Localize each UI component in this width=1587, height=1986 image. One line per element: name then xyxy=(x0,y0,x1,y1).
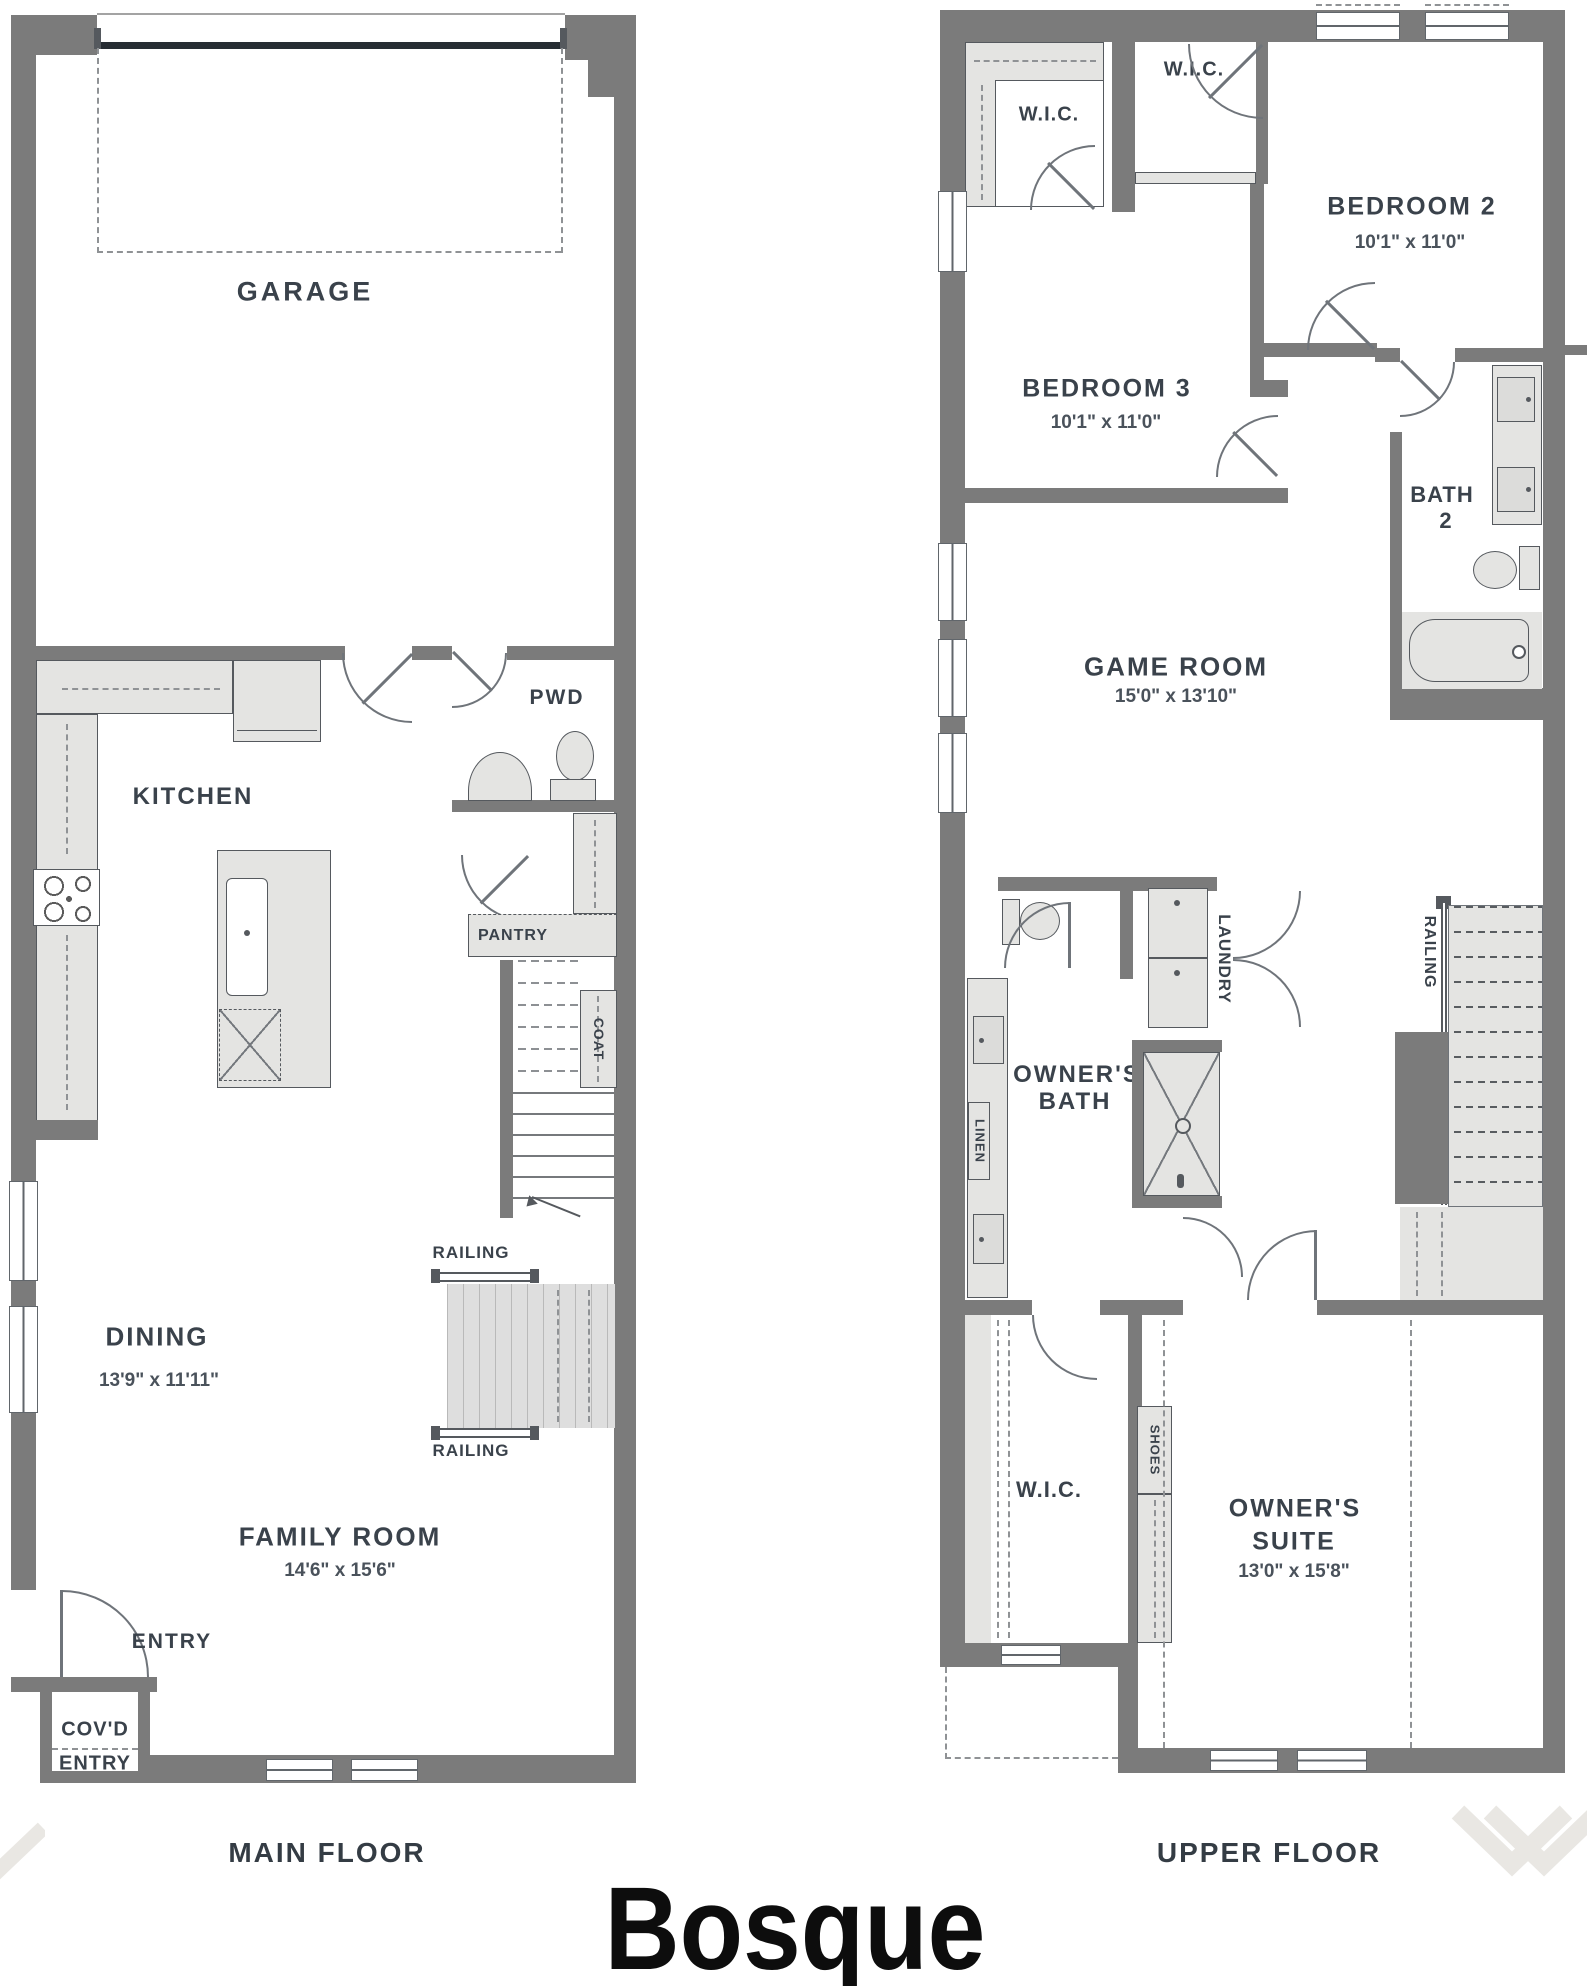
wall xyxy=(1385,348,1400,362)
wall xyxy=(1455,348,1565,362)
wall xyxy=(1390,432,1402,720)
door-arc xyxy=(1183,1217,1243,1277)
door-arc xyxy=(1233,891,1301,959)
appliance-knob xyxy=(1174,970,1180,976)
wall xyxy=(452,800,615,812)
door-arc xyxy=(1032,1315,1097,1380)
window xyxy=(9,1306,38,1413)
window xyxy=(1425,12,1509,40)
watermark-chevron-icon xyxy=(0,1818,45,1908)
sink-faucet xyxy=(1526,397,1531,402)
wall xyxy=(1250,184,1264,397)
watermark-chevron-icon xyxy=(1450,1800,1587,1920)
wall xyxy=(1112,42,1135,212)
door-arc xyxy=(1247,1230,1317,1300)
covd-entry-wall xyxy=(138,1692,150,1783)
door-arc xyxy=(1233,959,1301,1027)
shower-wall xyxy=(1132,1040,1222,1052)
landing-dash xyxy=(1416,1212,1418,1296)
wall xyxy=(940,1300,1032,1315)
room-dims-bedroom3: 10'1" x 11'0" xyxy=(1051,412,1162,434)
island-faucet xyxy=(244,930,250,936)
bathtub xyxy=(1409,619,1529,682)
kitchen-counter xyxy=(36,660,233,714)
floorplan-canvas: COV'D ENTRY GARAGE KITCHEN xyxy=(0,0,1587,1986)
window-header-dash xyxy=(1316,4,1400,6)
window xyxy=(938,733,967,813)
window xyxy=(938,543,967,621)
refrigerator-line xyxy=(237,730,317,731)
wall xyxy=(614,15,636,1783)
room-label-dining: DINING xyxy=(106,1322,209,1353)
garage-door-outline xyxy=(97,251,561,253)
room-label-linen: LINEN xyxy=(973,1119,988,1163)
window-header-dash xyxy=(1425,4,1509,6)
room-label-pantry: PANTRY xyxy=(478,927,548,945)
washer-dryer xyxy=(1148,958,1208,1028)
room-label-obath-line2: BATH xyxy=(1039,1088,1112,1116)
room-dims-bedroom2: 10'1" x 11'0" xyxy=(1355,232,1466,254)
room-label-bedroom2: BEDROOM 2 xyxy=(1327,193,1496,222)
room-label-coat: COAT xyxy=(591,1018,607,1061)
stairs-upper xyxy=(1448,905,1543,1207)
room-dims-game: 15'0" x 13'10" xyxy=(1115,686,1237,708)
closet-rod xyxy=(1008,1320,1010,1638)
room-label-bedroom3: BEDROOM 3 xyxy=(1022,375,1191,404)
garage-door xyxy=(97,42,563,49)
wall xyxy=(412,646,452,660)
garage-door-outline xyxy=(561,48,563,253)
room-label-family: FAMILY ROOM xyxy=(239,1522,442,1553)
room-label-suite-line1: OWNER'S xyxy=(1229,1495,1361,1524)
plan-title: Bosque xyxy=(605,1861,986,1986)
window xyxy=(1210,1750,1278,1771)
island-sink xyxy=(226,878,268,996)
window xyxy=(1001,1645,1061,1665)
roof-outline xyxy=(945,1757,1118,1759)
counter-dash xyxy=(66,724,68,854)
room-label-suite-line2: SUITE xyxy=(1252,1528,1336,1557)
wall xyxy=(11,1120,98,1140)
bath2-toilet xyxy=(1473,551,1517,589)
roof-outline xyxy=(945,1667,947,1759)
window xyxy=(938,639,967,717)
dishwasher xyxy=(219,1009,281,1081)
room-label-game: GAME ROOM xyxy=(1084,652,1268,683)
room-dims-suite: 13'0" x 15'8" xyxy=(1238,1561,1350,1583)
railing-label-top: RAILING xyxy=(433,1243,510,1263)
door-leaf xyxy=(1068,902,1071,968)
window xyxy=(938,191,967,272)
wic-shelf xyxy=(1135,172,1256,184)
railing-post xyxy=(530,1426,539,1440)
sink-faucet xyxy=(979,1038,984,1043)
railing-post xyxy=(530,1269,539,1283)
garage-door-post xyxy=(560,28,567,49)
upper-floor-caption: UPPER FLOOR xyxy=(1157,1837,1381,1869)
wall xyxy=(507,646,615,660)
pwd-sink xyxy=(468,752,532,801)
room-label-obath-line1: OWNER'S xyxy=(1013,1061,1141,1089)
range-stove xyxy=(33,869,100,926)
room-label-kitchen: KITCHEN xyxy=(133,783,254,811)
railing-post xyxy=(431,1426,440,1440)
closet-rod xyxy=(981,85,983,200)
shower-head xyxy=(1177,1174,1184,1188)
closet-rod xyxy=(974,60,1096,62)
wall xyxy=(11,15,36,1181)
main-floor-caption: MAIN FLOOR xyxy=(228,1837,425,1869)
room-label-pwd: PWD xyxy=(530,686,585,710)
stair-landing xyxy=(1400,1207,1543,1300)
covd-entry-wall xyxy=(40,1692,52,1783)
railing-label-bottom: RAILING xyxy=(433,1441,510,1461)
window xyxy=(266,1759,333,1781)
pwd-toilet xyxy=(556,731,594,781)
wall xyxy=(11,1677,157,1692)
stair-wall xyxy=(500,960,513,1218)
wall xyxy=(1543,10,1565,1773)
pwd-toilet-tank xyxy=(550,779,596,801)
railing-label: RAILING xyxy=(1420,916,1438,989)
shower-drain xyxy=(1175,1118,1191,1134)
railing-bar xyxy=(434,1272,537,1282)
room-label-entry: ENTRY xyxy=(132,1630,212,1654)
garage-door-outline xyxy=(97,48,99,253)
room-label-bath2-line1: BATH xyxy=(1410,482,1473,508)
closet-rod xyxy=(1154,1500,1156,1638)
stairwell-dash xyxy=(557,1290,559,1422)
garage-door-post xyxy=(94,28,101,49)
ceiling-break-dash xyxy=(1410,1320,1412,1748)
wall xyxy=(1390,688,1565,720)
room-label-wic-owners: W.I.C. xyxy=(1016,1477,1082,1503)
wall xyxy=(11,1281,36,1306)
wall xyxy=(1317,1300,1565,1315)
appliance-knob xyxy=(1174,900,1180,906)
ceiling-break-dash xyxy=(1163,1320,1165,1748)
wall xyxy=(11,1413,36,1590)
garage-exterior-line xyxy=(97,13,565,18)
wall xyxy=(1100,1300,1183,1315)
window xyxy=(351,1759,418,1781)
shower-wall xyxy=(1132,1040,1143,1208)
room-label-garage: GARAGE xyxy=(237,277,374,308)
covd-entry-threshold xyxy=(52,1748,138,1750)
room-label-shoes: SHOES xyxy=(1148,1425,1163,1476)
tub-faucet xyxy=(1512,645,1526,659)
washer-dryer xyxy=(1148,888,1208,958)
cabinet-dash xyxy=(594,820,596,908)
room-dims-family: 14'6" x 15'6" xyxy=(284,1560,396,1582)
shower-wall xyxy=(1132,1196,1222,1208)
stair-wall xyxy=(1395,1032,1448,1204)
vanity-sink xyxy=(973,1016,1004,1064)
sink-faucet xyxy=(979,1237,984,1242)
window xyxy=(1316,12,1400,40)
room-label-wic3: W.I.C. xyxy=(1019,104,1079,127)
window xyxy=(9,1181,38,1281)
door-leaf xyxy=(1314,1230,1317,1300)
room-label-bath2-line2: 2 xyxy=(1439,508,1452,534)
stairwell-dash xyxy=(588,1290,590,1422)
room-label-laundry: LAUNDRY xyxy=(1214,914,1234,1003)
wic-shelf xyxy=(965,1315,991,1643)
wall xyxy=(1250,380,1288,397)
door-leaf xyxy=(60,1590,63,1677)
counter-dash xyxy=(62,688,220,690)
sink-faucet xyxy=(1526,487,1531,492)
counter-dash xyxy=(66,935,68,1110)
covd-entry-label-line2: ENTRY xyxy=(59,1753,131,1776)
wall xyxy=(940,488,1288,503)
wall xyxy=(36,646,345,660)
room-dims-dining: 13'9" x 11'11" xyxy=(99,1370,219,1392)
vanity-sink xyxy=(973,1214,1004,1264)
bath2-toilet-tank xyxy=(1519,546,1540,590)
window xyxy=(1297,1750,1367,1771)
covd-entry-label-line1: COV'D xyxy=(61,1719,129,1742)
closet-rod xyxy=(997,1320,999,1638)
railing-post xyxy=(431,1269,440,1283)
railing-bar xyxy=(434,1428,537,1438)
wall xyxy=(1120,891,1133,979)
landing-dash xyxy=(1441,1212,1443,1296)
stairs-upper-flight xyxy=(513,960,580,1090)
